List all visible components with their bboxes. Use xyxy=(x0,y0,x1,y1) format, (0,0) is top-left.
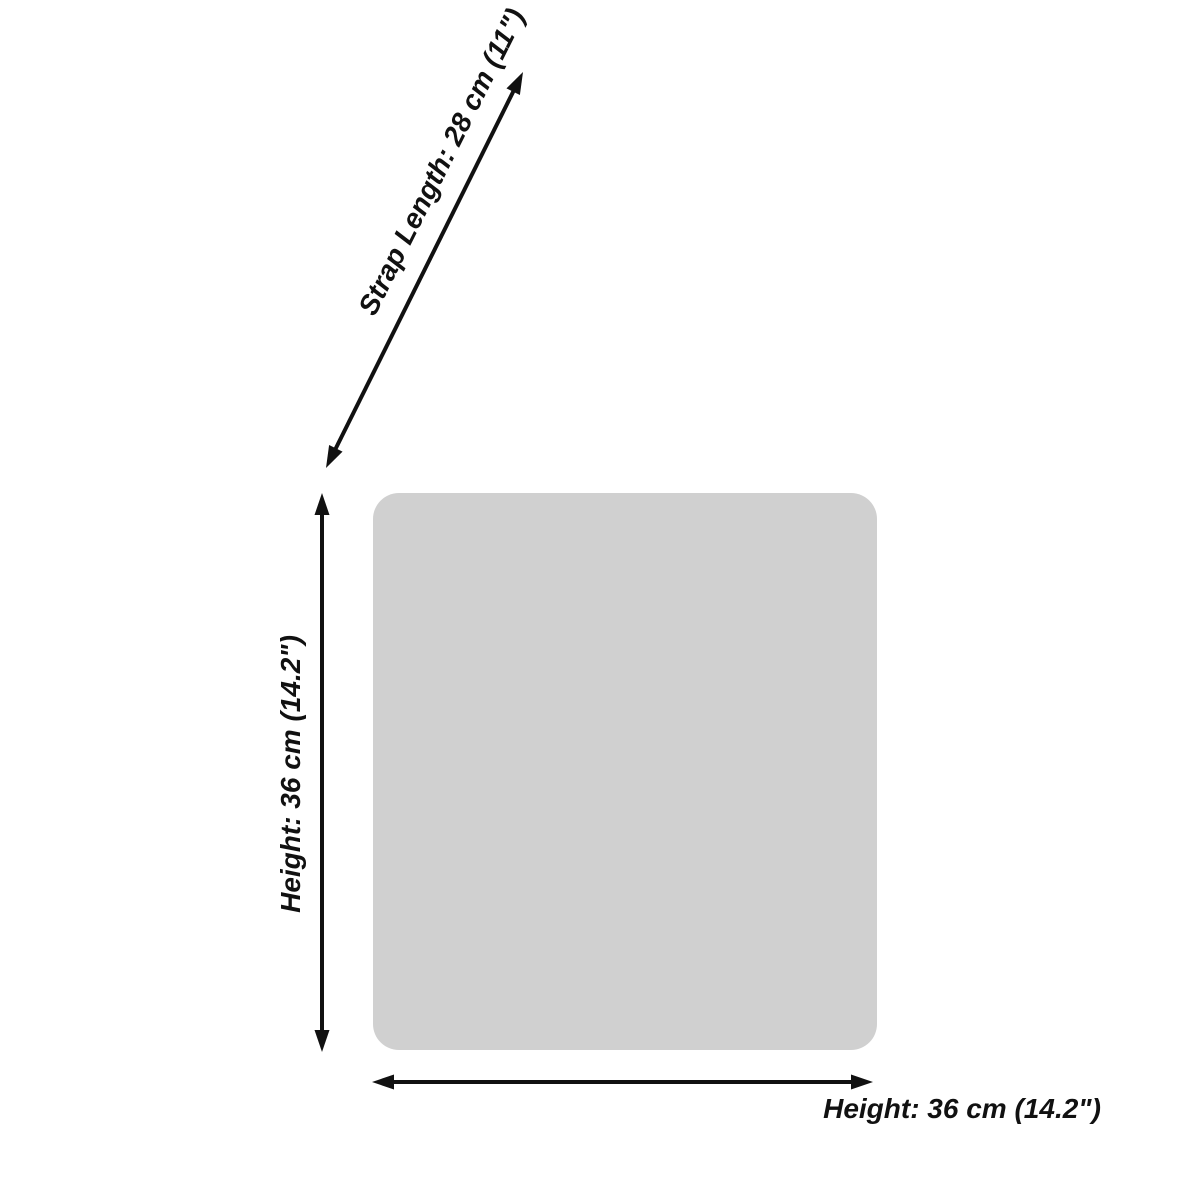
height-arrow xyxy=(315,493,330,1052)
bottom-width-arrowhead-left xyxy=(372,1075,394,1090)
bottom-width-label: Height: 36 cm (14.2") xyxy=(823,1093,1101,1124)
tote-bag-dimension-diagram: Strap Length: 28 cm (11") Height: 36 cm … xyxy=(0,0,1200,1200)
bottom-width-arrowhead-right xyxy=(851,1075,873,1090)
strap-length-arrow-shaft xyxy=(331,82,518,458)
strap-length-arrowhead-top xyxy=(506,69,529,95)
bottom-width-arrow xyxy=(372,1075,873,1090)
strap-length-arrowhead-bottom xyxy=(319,445,342,471)
dimension-diagram-page: Strap Length: 28 cm (11") Height: 36 cm … xyxy=(0,0,1200,1200)
strap-length-label: Strap Length: 28 cm (11") xyxy=(352,4,531,320)
strap-length-arrow xyxy=(319,69,529,472)
height-arrowhead-bottom xyxy=(315,1030,330,1052)
height-label: Height: 36 cm (14.2") xyxy=(275,635,306,913)
height-arrowhead-top xyxy=(315,493,330,515)
bag-body-shape xyxy=(373,493,877,1050)
bag-strap-shape xyxy=(394,92,856,545)
